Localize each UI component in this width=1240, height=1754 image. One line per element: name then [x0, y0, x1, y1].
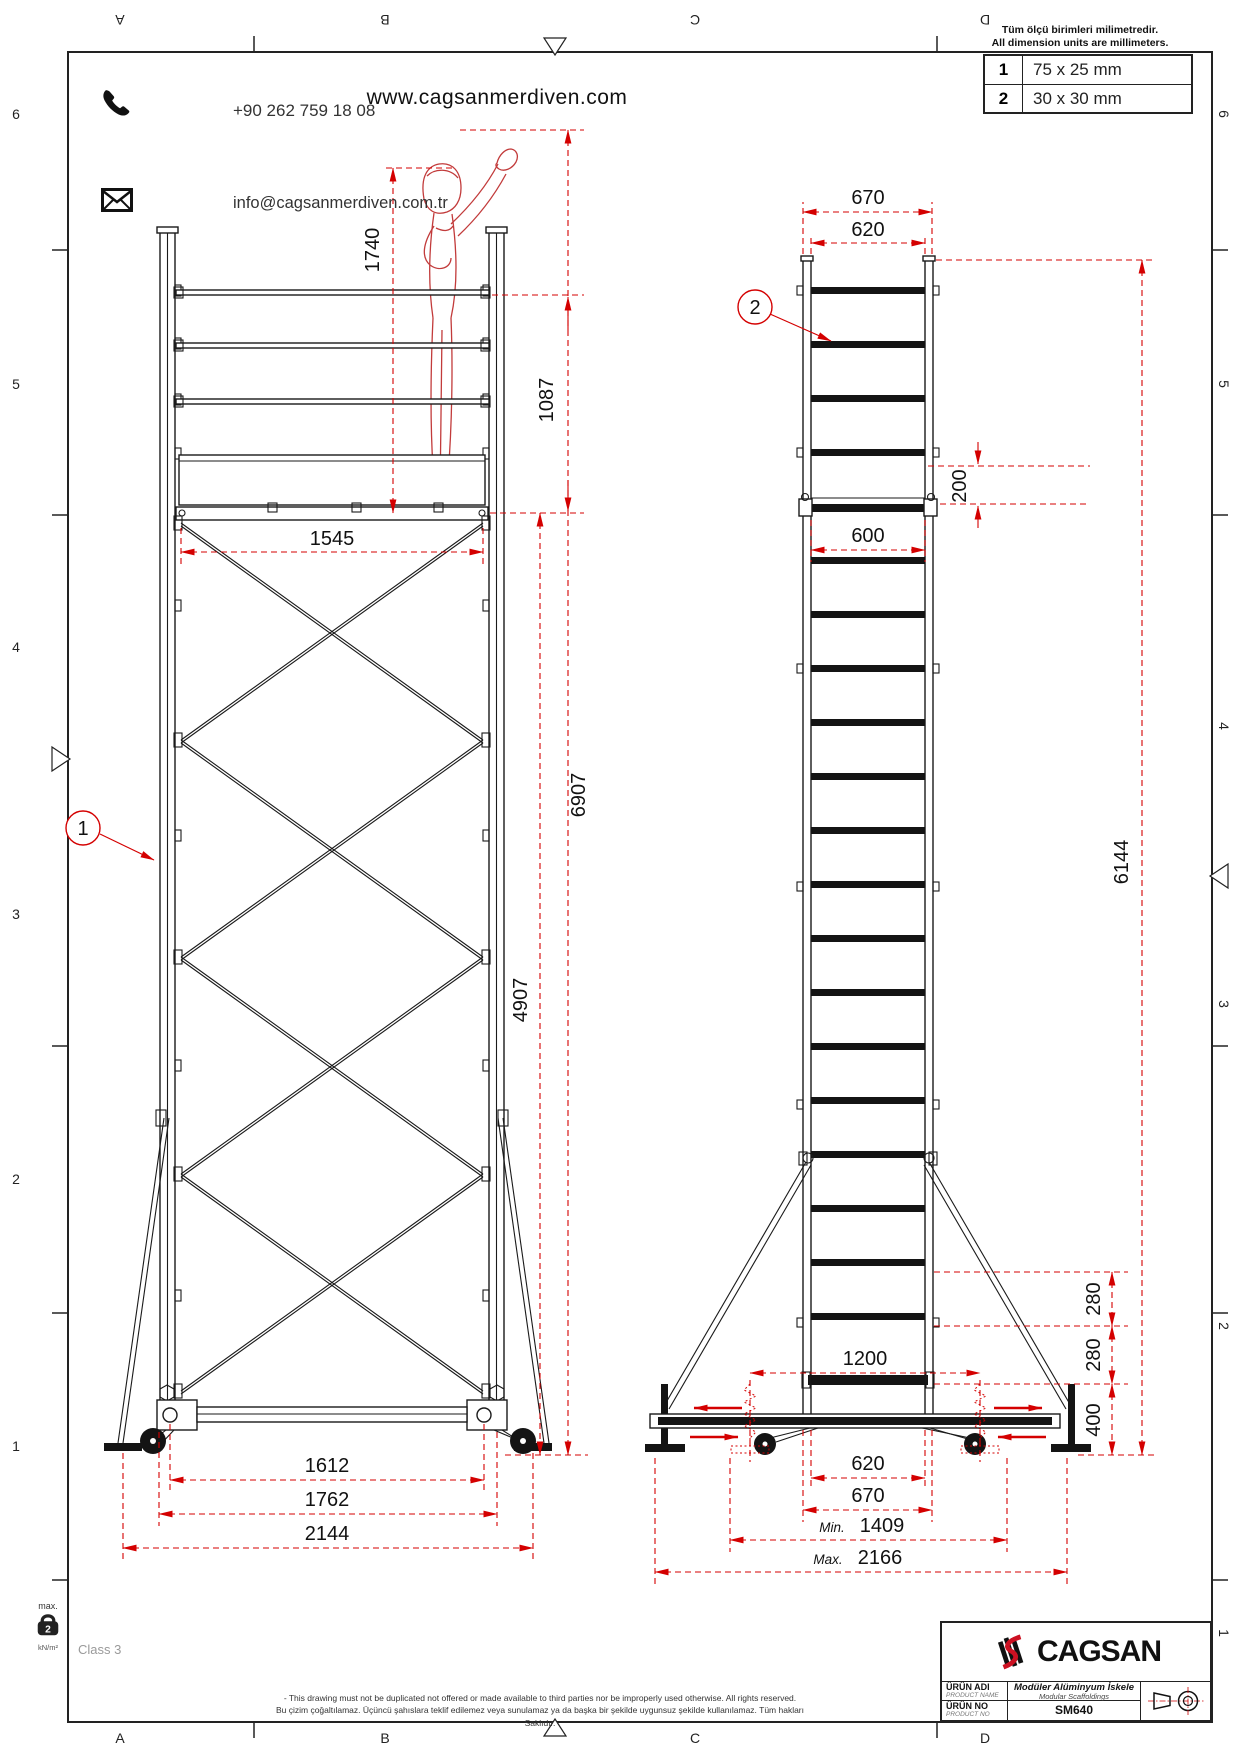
- weight-icon: 2: [33, 1611, 63, 1639]
- side-view: 2 670 620 6144 200 600: [645, 187, 1154, 1584]
- profile-row-2-item: 2: [985, 85, 1023, 112]
- grid-right-4: 4: [1216, 714, 1232, 738]
- grid-top-d: D: [973, 12, 997, 28]
- dim-side-1200: 1200: [843, 1348, 888, 1370]
- projection-symbol: [1141, 1682, 1210, 1720]
- dim-front-2144: 2144: [305, 1523, 350, 1545]
- drawing-canvas: CAGSAN: [0, 0, 1240, 1754]
- dim-side-min-label: Min.: [819, 1520, 845, 1535]
- dim-front-1087: 1087: [536, 378, 558, 423]
- dim-front-1762: 1762: [305, 1489, 350, 1511]
- dim-side-620-top: 620: [851, 219, 884, 241]
- dim-side-620-bottom: 620: [851, 1453, 884, 1475]
- units-note-en: All dimension units are millimeters.: [955, 37, 1205, 50]
- brand-name: CAGSAN: [1037, 1635, 1161, 1669]
- grid-bottom-c: C: [683, 1730, 707, 1746]
- dim-side-280b: 280: [1083, 1338, 1105, 1371]
- grid-left-4: 4: [4, 639, 28, 655]
- email-address: info@cagsanmerdiven.com.tr: [233, 194, 448, 213]
- grid-left-1: 1: [4, 1438, 28, 1454]
- front-cross-braces: [174, 516, 490, 1398]
- dim-side-max-label: Max.: [813, 1552, 842, 1567]
- dim-side-670-top: 670: [851, 187, 884, 209]
- max-label: max.: [30, 1602, 66, 1611]
- website-url: www.cagsanmerdiven.com: [347, 86, 647, 110]
- grid-left-2: 2: [4, 1171, 28, 1187]
- callout-1-number: 1: [77, 818, 88, 840]
- dim-side-400: 400: [1083, 1403, 1105, 1436]
- dim-side-600: 600: [851, 525, 884, 547]
- disclaimer-line-tr: Bu çizim çoğaltılamaz. Üçüncü şahıslara …: [270, 1704, 810, 1729]
- profile-table: 1 75 x 25 mm 2 30 x 30 mm: [983, 54, 1193, 114]
- load-value: 2: [45, 1624, 51, 1635]
- load-class-icon-block: max. 2 kN/m²: [30, 1602, 66, 1652]
- grid-right-5: 5: [1216, 372, 1232, 396]
- callout-2: 2: [738, 290, 831, 341]
- sheet-frame: [68, 52, 1212, 1722]
- disclaimer: - This drawing must not be duplicated no…: [270, 1692, 810, 1729]
- grid-right-2: 2: [1216, 1314, 1232, 1338]
- grid-top-b: B: [373, 12, 397, 28]
- front-guardrails: [174, 287, 490, 407]
- dim-front-6907: 6907: [568, 773, 590, 818]
- product-no-label-tr: ÜRÜN NO: [946, 1702, 1007, 1711]
- product-name-label-tr: ÜRÜN ADI: [946, 1683, 1007, 1692]
- product-no-label-en: PRODUCT NO: [946, 1711, 1007, 1718]
- product-name-row: ÜRÜN ADI PRODUCT NAME Modüler Alüminyum …: [942, 1682, 1141, 1701]
- email-icon: [101, 188, 133, 217]
- profile-row-1-item: 1: [985, 56, 1023, 84]
- dim-side-200: 200: [949, 469, 971, 502]
- grid-left-5: 5: [4, 376, 28, 392]
- dim-side-max-value: 2166: [858, 1547, 903, 1569]
- callout-2-number: 2: [749, 297, 760, 319]
- drawing-sheet: CAGSAN: [0, 0, 1240, 1754]
- load-unit: kN/m²: [30, 1644, 66, 1652]
- dim-front-4907: 4907: [510, 978, 532, 1023]
- grid-bottom-d: D: [973, 1730, 997, 1746]
- projection-symbol-icon: [1144, 1684, 1208, 1718]
- dim-side-280a: 280: [1083, 1282, 1105, 1315]
- dim-side-6144: 6144: [1111, 840, 1133, 885]
- side-platform: [799, 494, 937, 517]
- grid-bottom-b: B: [373, 1730, 397, 1746]
- profile-row-1: 1 75 x 25 mm: [985, 56, 1191, 84]
- brand-logo: CAGSAN: [942, 1623, 1210, 1682]
- dim-front-1612: 1612: [305, 1455, 350, 1477]
- product-no-value: SM640: [1008, 1702, 1140, 1719]
- profile-row-2: 2 30 x 30 mm: [985, 84, 1191, 112]
- dim-side-670-bottom: 670: [851, 1485, 884, 1507]
- dim-front-1545: 1545: [310, 528, 355, 550]
- class-label: Class 3: [78, 1642, 121, 1657]
- grid-left-6: 6: [4, 106, 28, 122]
- dim-front-1740: 1740: [362, 228, 384, 273]
- product-no-row: ÜRÜN NO PRODUCT NO SM640: [942, 1701, 1141, 1720]
- front-base: [140, 1385, 536, 1454]
- side-posts: [797, 256, 939, 1420]
- profile-row-2-size: 30 x 30 mm: [1023, 89, 1191, 109]
- grid-top-c: C: [683, 12, 707, 28]
- watermark-text: CAGSAN: [273, 121, 1157, 1548]
- side-rungs: [811, 287, 925, 1320]
- front-platform: [176, 455, 488, 520]
- grid-bottom-a: A: [108, 1730, 132, 1746]
- phone-icon: [100, 88, 134, 127]
- disclaimer-line-en: - This drawing must not be duplicated no…: [270, 1692, 810, 1704]
- brand-logo-icon: [991, 1633, 1033, 1671]
- dim-side-min-value: 1409: [860, 1515, 905, 1537]
- grid-right-3: 3: [1216, 992, 1232, 1016]
- grid-left-3: 3: [4, 906, 28, 922]
- grid-top-a: A: [108, 12, 132, 28]
- side-crossbar: [802, 1372, 934, 1388]
- grid-right-6: 6: [1216, 102, 1232, 126]
- callout-1: 1: [66, 811, 154, 860]
- grid-right-1: 1: [1216, 1621, 1232, 1645]
- product-name-label-en: PRODUCT NAME: [946, 1692, 1007, 1699]
- title-block: CAGSAN ÜRÜN ADI PRODUCT NAME Modüler Alü…: [940, 1621, 1212, 1722]
- profile-row-1-size: 75 x 25 mm: [1023, 60, 1191, 80]
